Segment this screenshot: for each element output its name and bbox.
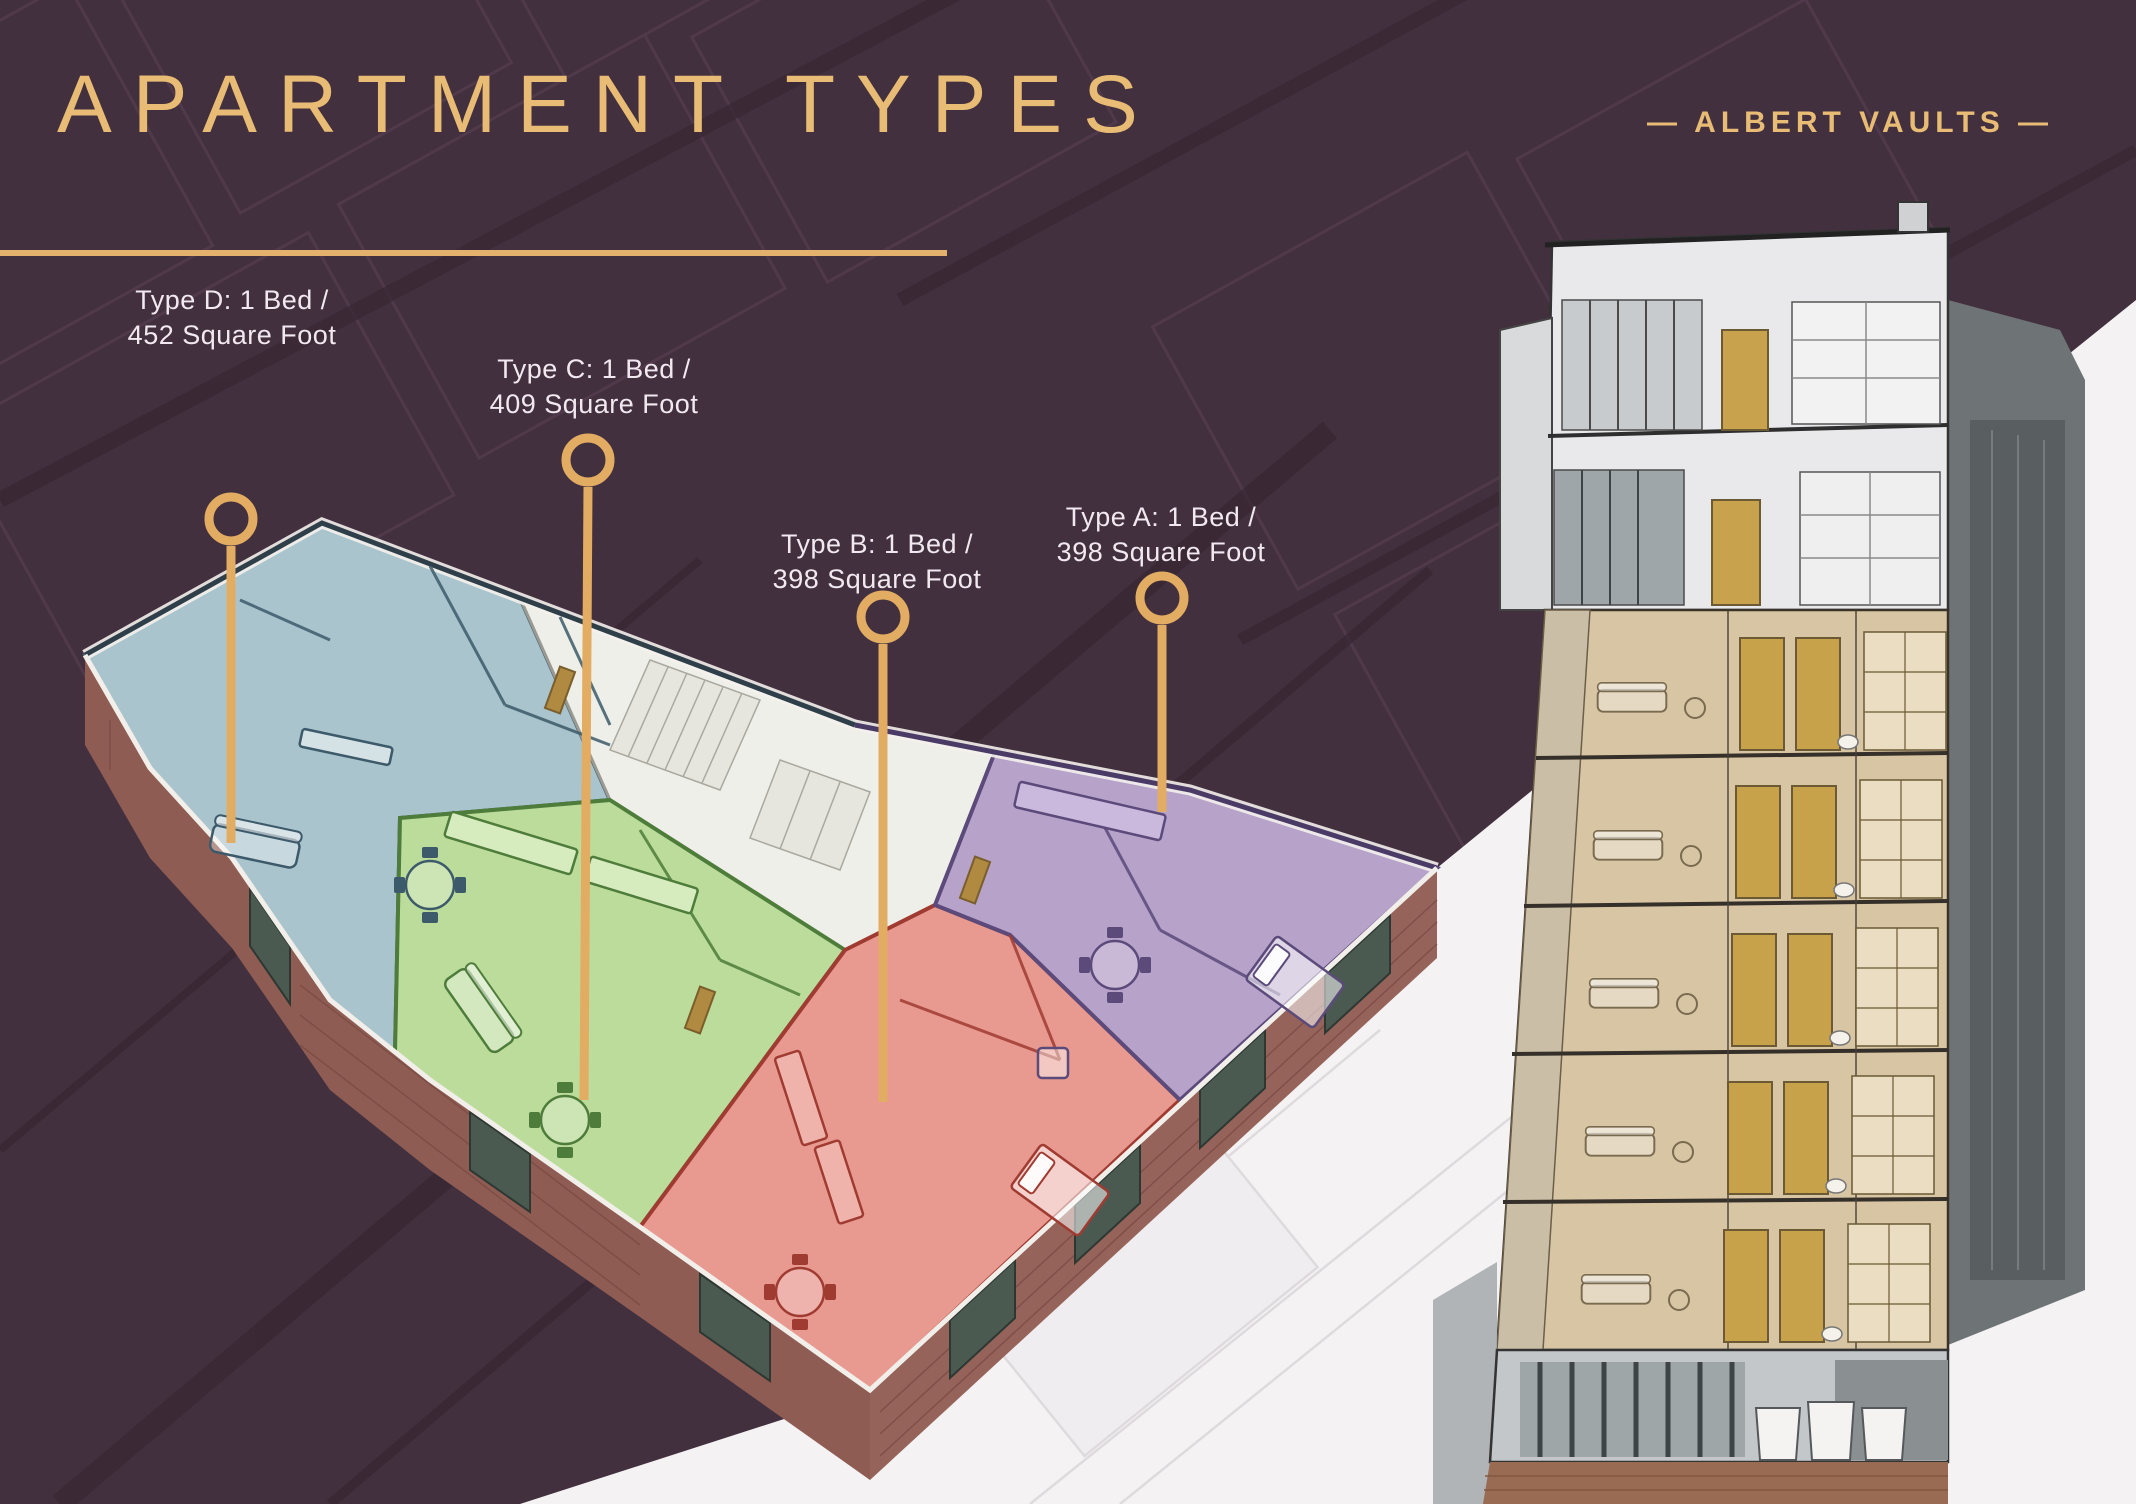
brand-logo: — ALBERT VAULTS — — [1585, 106, 2115, 140]
callout-label-type-a: Type A: 1 Bed / 398 Square Foot — [1057, 500, 1266, 570]
callout-label-type-c: Type C: 1 Bed / 409 Square Foot — [490, 352, 699, 422]
callout-label-line: 398 Square Foot — [773, 562, 982, 597]
section-highlight-floors — [1497, 610, 1948, 1350]
callout-label-line: 398 Square Foot — [1057, 535, 1266, 570]
title-underline — [0, 250, 947, 256]
slide-canvas: APARTMENT TYPES — ALBERT VAULTS — Type D… — [0, 0, 2136, 1504]
page-title: APARTMENT TYPES — [57, 58, 1159, 152]
section-right-wall — [1948, 300, 2085, 1345]
waste-bins — [1756, 1402, 1906, 1460]
scene-graphics — [0, 0, 2136, 1504]
callout-label-type-b: Type B: 1 Bed / 398 Square Foot — [773, 527, 982, 597]
callout-label-line: Type D: 1 Bed / — [128, 283, 337, 318]
callout-label-line: Type B: 1 Bed / — [773, 527, 982, 562]
callout-label-line: Type C: 1 Bed / — [490, 352, 699, 387]
section-upper-floors — [1500, 202, 1950, 610]
callout-label-line: Type A: 1 Bed / — [1057, 500, 1266, 535]
building-section-figure — [1433, 202, 2085, 1504]
callout-label-line: 409 Square Foot — [490, 387, 699, 422]
callout-label-line: 452 Square Foot — [128, 318, 337, 353]
callout-label-type-d: Type D: 1 Bed / 452 Square Foot — [128, 283, 337, 353]
